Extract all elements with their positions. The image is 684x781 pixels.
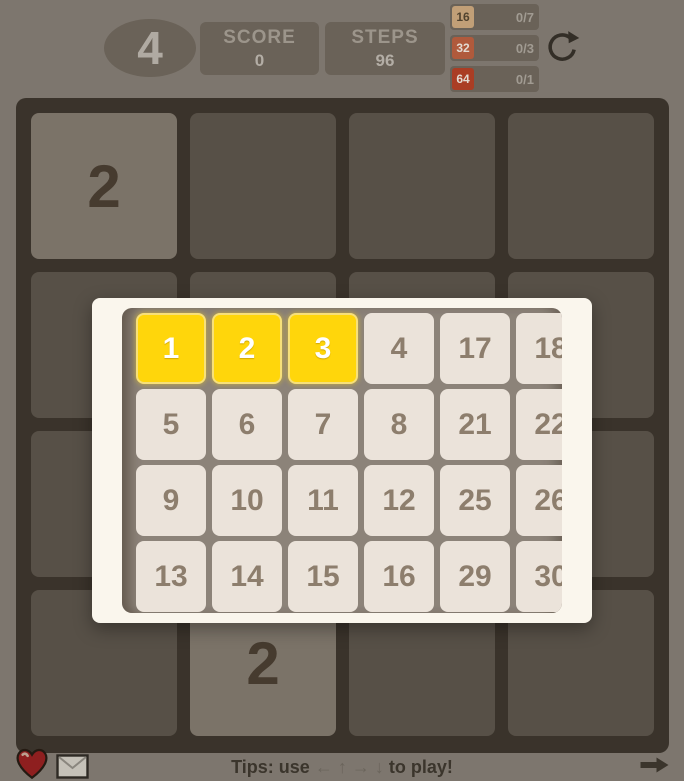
level-tile[interactable]: 15 bbox=[288, 541, 358, 612]
goal-tile-64: 64 bbox=[452, 68, 474, 90]
board-cell bbox=[190, 113, 336, 259]
level-tile[interactable]: 22 bbox=[516, 389, 562, 460]
next-goal-value: 4 bbox=[137, 21, 163, 75]
steps-box: STEPS 96 bbox=[325, 22, 445, 75]
level-carousel[interactable]: 1 2 3 4 17 18 5 6 7 8 21 22 9 10 11 12 2… bbox=[122, 308, 562, 613]
goal-progress-64: 0/1 bbox=[474, 72, 534, 87]
goal-progress-32: 0/3 bbox=[474, 41, 534, 56]
level-tile[interactable]: 4 bbox=[364, 313, 434, 384]
level-tile[interactable]: 7 bbox=[288, 389, 358, 460]
level-tile[interactable]: 30 bbox=[516, 541, 562, 612]
level-tile[interactable]: 1 bbox=[136, 313, 206, 384]
score-value: 0 bbox=[255, 51, 264, 71]
level-row: 13 14 15 16 29 30 bbox=[136, 541, 562, 612]
next-button[interactable] bbox=[640, 757, 669, 773]
goal-tile-16: 16 bbox=[452, 6, 474, 28]
level-tile[interactable]: 25 bbox=[440, 465, 510, 536]
board-cell: 2 bbox=[31, 113, 177, 259]
level-tile[interactable]: 18 bbox=[516, 313, 562, 384]
goal-tile-32: 32 bbox=[452, 37, 474, 59]
steps-label: STEPS bbox=[351, 27, 418, 49]
level-tile[interactable]: 11 bbox=[288, 465, 358, 536]
goal-progress-16: 0/7 bbox=[474, 10, 534, 25]
goal-badge-32: 32 0/3 bbox=[450, 35, 539, 61]
board-cell bbox=[349, 113, 495, 259]
score-box: SCORE 0 bbox=[200, 22, 319, 75]
level-tile[interactable]: 6 bbox=[212, 389, 282, 460]
goal-badge-16: 16 0/7 bbox=[450, 4, 539, 30]
level-tile[interactable]: 26 bbox=[516, 465, 562, 536]
level-tile[interactable]: 8 bbox=[364, 389, 434, 460]
level-row: 5 6 7 8 21 22 bbox=[136, 389, 562, 460]
tips-arrow-keys: ← ↑ → ↓ bbox=[315, 757, 384, 777]
right-arrow-icon bbox=[640, 757, 669, 773]
level-tile[interactable]: 3 bbox=[288, 313, 358, 384]
level-tile[interactable]: 5 bbox=[136, 389, 206, 460]
level-tile[interactable]: 29 bbox=[440, 541, 510, 612]
level-row: 1 2 3 4 17 18 bbox=[136, 313, 562, 384]
level-row: 9 10 11 12 25 26 bbox=[136, 465, 562, 536]
score-label: SCORE bbox=[223, 27, 296, 49]
tips-text: Tips: use ← ↑ → ↓ to play! bbox=[0, 757, 684, 778]
level-tile[interactable]: 21 bbox=[440, 389, 510, 460]
level-tile[interactable]: 13 bbox=[136, 541, 206, 612]
level-tile[interactable]: 2 bbox=[212, 313, 282, 384]
board-cell bbox=[508, 113, 654, 259]
goal-badge-64: 64 0/1 bbox=[450, 66, 539, 92]
level-tile[interactable]: 9 bbox=[136, 465, 206, 536]
restart-button[interactable] bbox=[545, 28, 583, 68]
level-tile[interactable]: 10 bbox=[212, 465, 282, 536]
next-goal-tile-badge: 4 bbox=[104, 19, 196, 77]
tips-prefix: Tips: use bbox=[231, 757, 315, 777]
goal-list: 16 0/7 32 0/3 64 0/1 bbox=[450, 4, 539, 97]
game-screen: 4 SCORE 0 STEPS 96 16 0/7 32 0/3 64 0/1 … bbox=[0, 0, 684, 781]
level-tile[interactable]: 17 bbox=[440, 313, 510, 384]
level-tile[interactable]: 16 bbox=[364, 541, 434, 612]
level-picker-modal: 1 2 3 4 17 18 5 6 7 8 21 22 9 10 11 12 2… bbox=[92, 298, 592, 623]
level-tile[interactable]: 14 bbox=[212, 541, 282, 612]
level-tile[interactable]: 12 bbox=[364, 465, 434, 536]
steps-value: 96 bbox=[376, 51, 395, 71]
tips-suffix: to play! bbox=[384, 757, 453, 777]
refresh-icon bbox=[545, 28, 583, 68]
